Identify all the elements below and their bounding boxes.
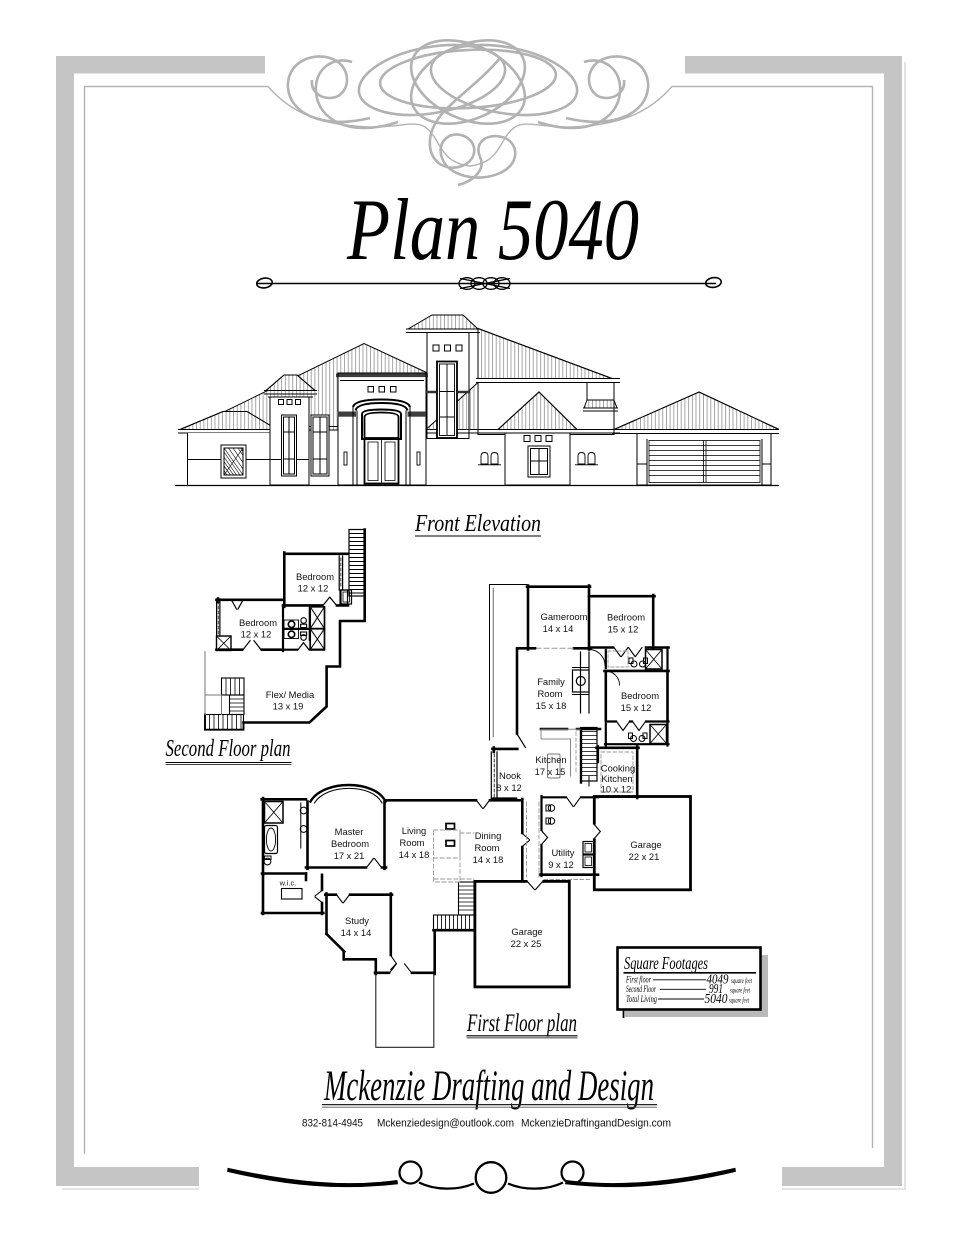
svg-text:Utility: Utility <box>552 847 575 858</box>
svg-text:Second Floor: Second Floor <box>626 984 656 994</box>
svg-text:square feet: square feet <box>729 996 750 1004</box>
svg-text:14 x 14: 14 x 14 <box>543 623 574 634</box>
svg-text:14 x 18: 14 x 18 <box>473 854 504 865</box>
svg-text:15 x 18: 15 x 18 <box>536 700 567 711</box>
svg-text:14 x 14: 14 x 14 <box>341 927 372 938</box>
svg-text:Room: Room <box>537 688 562 699</box>
svg-text:Flex/ Media: Flex/ Media <box>266 689 315 700</box>
svg-text:12 x 12: 12 x 12 <box>241 629 272 640</box>
svg-text:15 x 12: 15 x 12 <box>608 624 639 635</box>
svg-text:Kitchen: Kitchen <box>535 754 566 765</box>
svg-text:12 x 12: 12 x 12 <box>298 583 329 594</box>
svg-text:14 x 18: 14 x 18 <box>399 849 430 860</box>
svg-text:Room: Room <box>399 837 424 848</box>
svg-text:First Floor plan: First Floor plan <box>466 1010 577 1037</box>
svg-text:5040: 5040 <box>705 991 728 1006</box>
svg-text:Room: Room <box>474 842 499 853</box>
svg-text:MckenzieDraftingandDesign.com: MckenzieDraftingandDesign.com <box>521 1118 671 1130</box>
svg-text:Bedroom: Bedroom <box>331 838 369 849</box>
svg-text:Gameroom: Gameroom <box>541 611 588 622</box>
svg-text:Garage: Garage <box>511 926 542 937</box>
svg-text:17 x 15: 17 x 15 <box>535 766 566 777</box>
svg-text:832-814-4945: 832-814-4945 <box>302 1118 363 1130</box>
svg-text:Bedroom: Bedroom <box>296 571 334 582</box>
svg-text:Square Footages: Square Footages <box>624 953 708 973</box>
svg-text:13 x 19: 13 x 19 <box>273 701 304 712</box>
svg-text:Kitchen: Kitchen <box>601 773 632 784</box>
svg-text:Mckenziedesign@outlook.com: Mckenziedesign@outlook.com <box>377 1118 514 1130</box>
svg-text:Garage: Garage <box>630 839 661 850</box>
svg-text:First floor: First floor <box>625 975 651 985</box>
svg-text:22 x 25: 22 x 25 <box>511 938 542 949</box>
svg-text:Plan 5040: Plan 5040 <box>346 182 639 279</box>
svg-text:Family: Family <box>537 676 565 687</box>
svg-text:8 x 12: 8 x 12 <box>496 782 522 793</box>
svg-text:22 x 21: 22 x 21 <box>629 851 660 862</box>
svg-text:square feet: square feet <box>730 987 751 995</box>
svg-text:17 x 21: 17 x 21 <box>334 850 365 861</box>
svg-text:Nook: Nook <box>499 770 521 781</box>
svg-text:Front Elevation: Front Elevation <box>414 511 541 537</box>
svg-text:Bedroom: Bedroom <box>621 690 659 701</box>
svg-text:Master: Master <box>335 826 364 837</box>
svg-text:Bedroom: Bedroom <box>607 612 645 623</box>
svg-text:Study: Study <box>345 915 369 926</box>
svg-text:Cooking: Cooking <box>601 763 635 774</box>
svg-text:Bedroom: Bedroom <box>239 617 277 628</box>
svg-text:square feet: square feet <box>731 977 753 985</box>
svg-text:Mckenzie Drafting and Design: Mckenzie Drafting and Design <box>323 1063 654 1110</box>
svg-text:15 x 12: 15 x 12 <box>621 702 652 713</box>
svg-text:Living: Living <box>402 825 427 836</box>
svg-text:10 x 12: 10 x 12 <box>601 784 632 795</box>
svg-text:Total Living: Total Living <box>626 994 657 1004</box>
svg-text:Second Floor plan: Second Floor plan <box>166 736 291 762</box>
svg-text:9 x 12: 9 x 12 <box>548 859 574 870</box>
svg-text:w.i.c.: w.i.c. <box>279 879 297 888</box>
svg-text:Dining: Dining <box>475 830 502 841</box>
